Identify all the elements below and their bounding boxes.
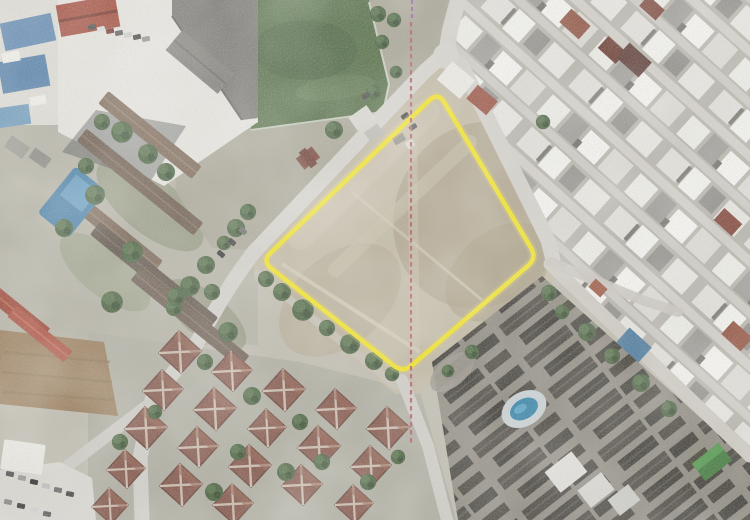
tree <box>240 204 256 220</box>
tree <box>94 114 110 130</box>
tree <box>632 374 650 392</box>
tree <box>277 463 295 481</box>
tree <box>370 6 386 22</box>
tree <box>148 405 162 419</box>
tree <box>375 35 389 49</box>
aerial-photo-canvas <box>0 0 750 520</box>
tree <box>121 241 143 263</box>
tree <box>205 483 223 501</box>
tree <box>230 444 246 460</box>
tree <box>390 66 403 79</box>
tree <box>555 305 569 319</box>
tree <box>387 13 401 27</box>
sports-field-shade <box>253 20 357 80</box>
tree <box>78 158 94 174</box>
tree <box>391 450 405 464</box>
tree <box>197 256 215 274</box>
tree <box>292 414 308 430</box>
white-building <box>0 439 46 475</box>
tree <box>101 291 123 313</box>
tree <box>325 121 343 139</box>
tree <box>217 236 231 250</box>
tree <box>167 288 185 306</box>
tree <box>197 354 213 370</box>
tree <box>85 185 105 205</box>
aerial-photo <box>0 0 750 520</box>
tree <box>157 163 175 181</box>
tree <box>55 219 73 237</box>
tree <box>243 387 261 405</box>
tree <box>112 434 128 450</box>
tree <box>204 284 220 300</box>
tree <box>314 454 330 470</box>
tree <box>442 365 455 378</box>
tree <box>536 115 550 129</box>
tree <box>138 144 158 164</box>
tree <box>218 322 238 342</box>
tree <box>541 285 557 301</box>
tree <box>367 85 381 99</box>
tree <box>578 323 596 341</box>
tree <box>465 345 479 359</box>
tree <box>661 401 677 417</box>
tree <box>111 121 133 143</box>
tree <box>360 474 376 490</box>
tree <box>604 348 620 364</box>
